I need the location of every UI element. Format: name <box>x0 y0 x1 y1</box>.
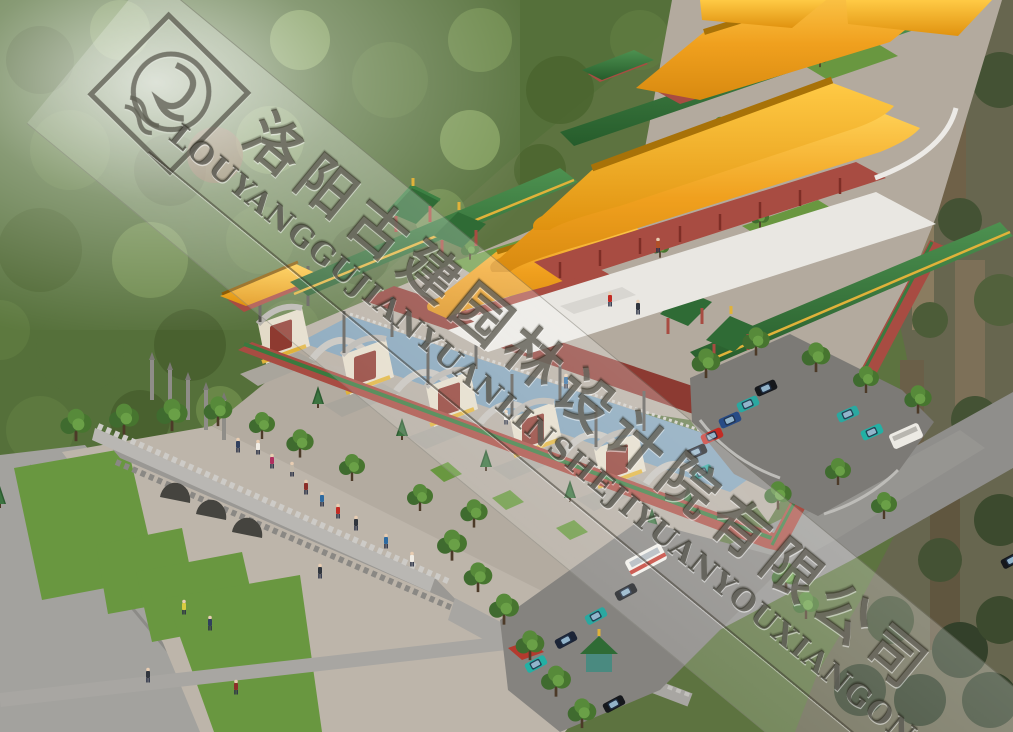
scene <box>0 0 1013 732</box>
architectural-rendering-canvas: 洛阳古建园林设计院有限公司 LOUYANGGUJIANYUANLINSHEJIY… <box>0 0 1013 732</box>
